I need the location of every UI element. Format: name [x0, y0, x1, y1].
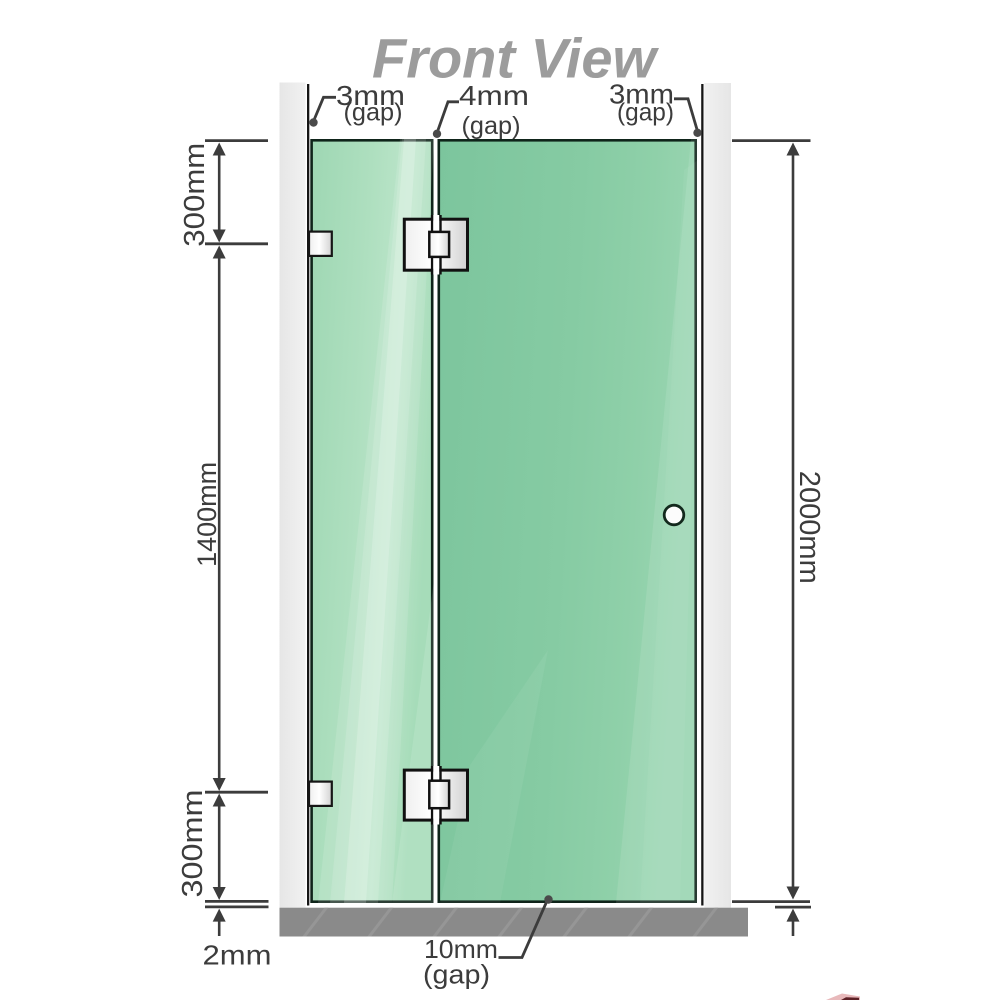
- svg-text:2000mm: 2000mm: [793, 471, 825, 584]
- svg-text:(gap): (gap): [423, 960, 490, 990]
- svg-text:4mm: 4mm: [459, 80, 529, 111]
- svg-text:(gap): (gap): [617, 99, 674, 127]
- svg-text:300mm: 300mm: [179, 143, 211, 247]
- svg-text:(gap): (gap): [344, 99, 403, 127]
- svg-text:300mm: 300mm: [177, 790, 209, 898]
- svg-text:(gap): (gap): [462, 112, 521, 140]
- svg-text:1400mm: 1400mm: [192, 462, 222, 567]
- svg-text:2mm: 2mm: [203, 940, 272, 971]
